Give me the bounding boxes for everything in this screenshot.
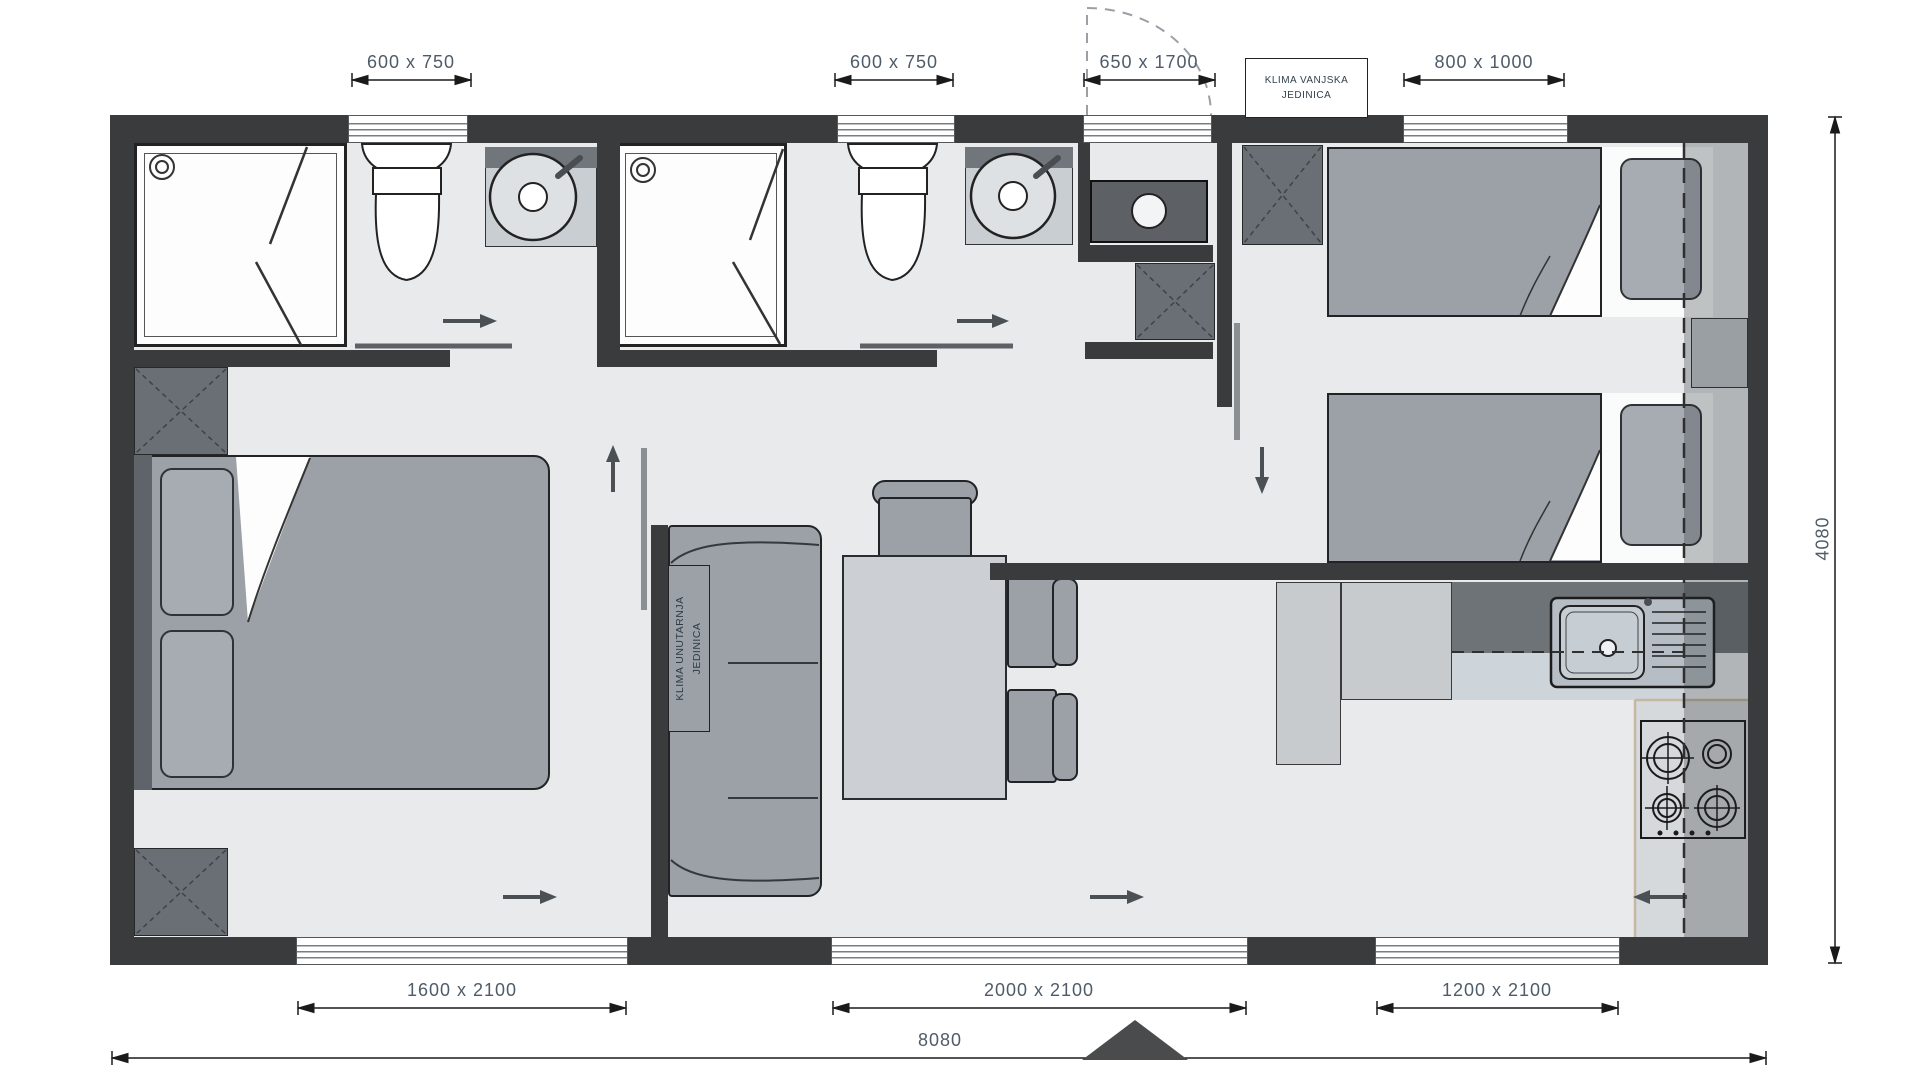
dim-living-door: 2000 x 2100	[959, 980, 1119, 1001]
dim-bathroom2-window: 600 x 750	[824, 52, 964, 73]
dimension-layer	[0, 0, 1920, 1080]
dim-bedroom2-window: 800 x 1000	[1409, 52, 1559, 73]
dim-overall-height: 4080	[1813, 489, 1834, 589]
dim-bedroom1-door: 1600 x 2100	[382, 980, 542, 1001]
dim-overall-width: 8080	[890, 1030, 990, 1051]
floor-plan-canvas: KLIMA VANJSKA JEDINICA KLIMA UNUTARNJA J…	[0, 0, 1920, 1080]
dim-technical-door: 650 x 1700	[1074, 52, 1224, 73]
dim-bathroom1-window: 600 x 750	[341, 52, 481, 73]
entrance-marker-icon	[1082, 1020, 1188, 1060]
dim-kitchen-window: 1200 x 2100	[1417, 980, 1577, 1001]
